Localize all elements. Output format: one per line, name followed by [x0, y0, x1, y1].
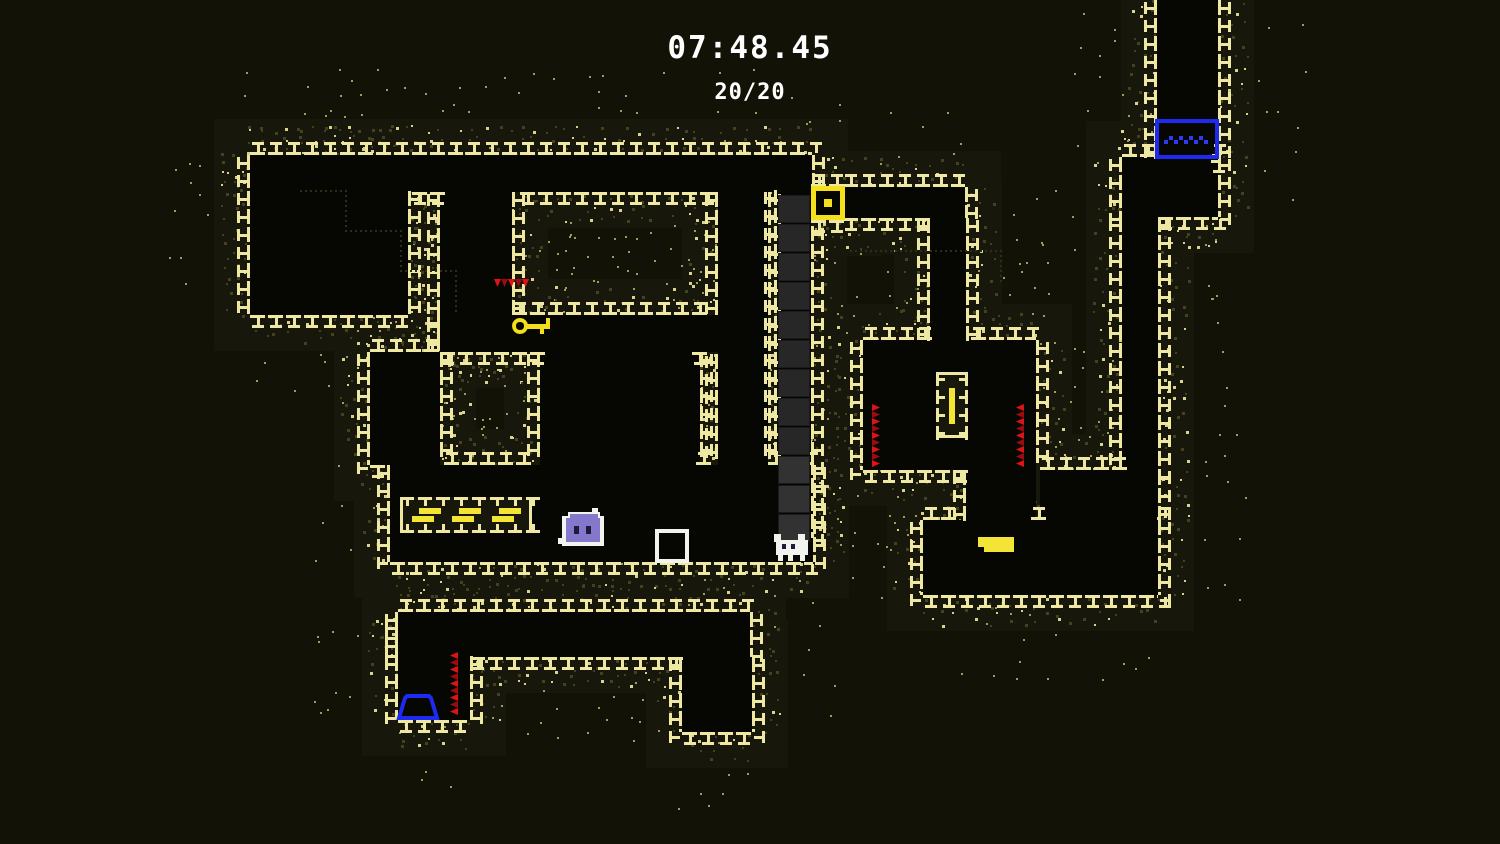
timer-display: 07:48.45: [0, 30, 1500, 66]
game-canvas[interactable]: [0, 0, 1500, 844]
collectible-counter: 20/20: [0, 80, 1500, 105]
game-screen: 07:48.45 20/20: [0, 0, 1500, 844]
